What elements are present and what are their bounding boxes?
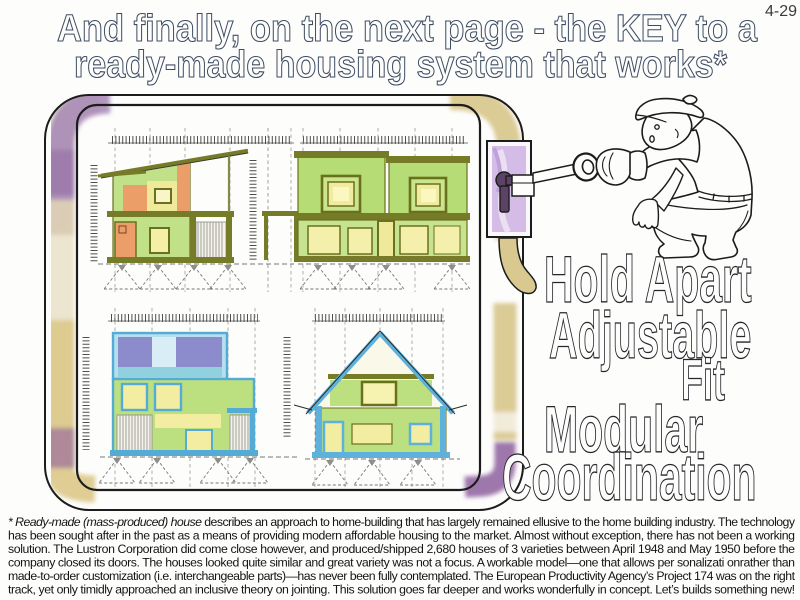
svg-text:Coordination: Coordination [502, 440, 757, 515]
svg-text:* Ready-made (mass-produced) h: * Ready-made (mass-produced) house descr… [8, 515, 796, 529]
svg-text:4-29: 4-29 [765, 3, 797, 20]
svg-text:has been sought after in the p: has been sought after in the past as a m… [8, 529, 795, 543]
svg-text:ready-made housing system that: ready-made housing system that works* [74, 44, 727, 86]
svg-text:company closed its doors. The: company closed its doors. The houses loo… [8, 556, 795, 570]
svg-text:solution. The Lustron Corporat: solution. The Lustron Corporation did co… [8, 542, 795, 556]
svg-text:track, yet only timidly approa: track, yet only timidly approached an in… [8, 583, 795, 597]
svg-text:made-to-order customization (i: made-to-order customization (i.e. interc… [8, 569, 796, 583]
